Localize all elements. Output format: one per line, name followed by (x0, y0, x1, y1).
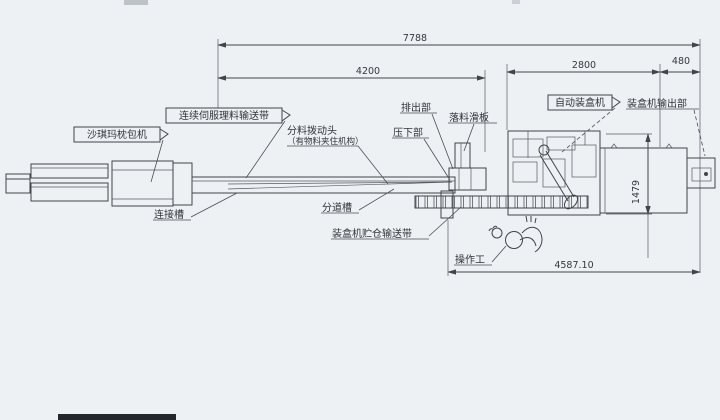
storage-conveyor-label: 装盒机贮仓输送带 (332, 227, 412, 240)
press-down-label: 压下部 (393, 126, 423, 139)
scan-artifact-bottom (58, 414, 176, 420)
dim-cartoner-value: 2800 (572, 60, 596, 71)
connect-chute-label: 连接槽 (154, 208, 184, 221)
servo-conveyor-label: 连续伺服理料输送带 (179, 109, 269, 122)
scanned-engineering-drawing: 7788 4200 2800 480 1479 4587.10 (0, 0, 720, 420)
dim-outfeed-value: 480 (672, 56, 690, 67)
dim-infeed-value: 4200 (356, 66, 380, 77)
eject-section-label: 排出部 (401, 101, 431, 114)
shaqima-machine-label: 沙琪玛枕包机 (87, 128, 147, 141)
operator-label: 操作工 (455, 253, 485, 266)
divider-head-note-label: （有物料夹住机构） (287, 136, 364, 147)
dim-height-value: 1479 (631, 180, 642, 204)
drop-slide-label: 落料滑板 (449, 111, 489, 124)
scan-artifact-top2 (512, 0, 520, 4)
divide-chute-label: 分道槽 (322, 201, 352, 214)
auto-cartoner-label: 自动装盒机 (555, 96, 605, 109)
dim-overall-value: 7788 (403, 33, 427, 44)
divider-head-label: 分料拨动头 (287, 124, 337, 137)
scan-artifact-top (124, 0, 148, 5)
cartoner-output-label: 装盒机输出部 (627, 97, 687, 110)
layout-drawing-canvas: 7788 4200 2800 480 1479 4587.10 (0, 0, 720, 420)
paper-background (0, 0, 720, 420)
dim-working-value: 4587.10 (554, 260, 593, 271)
